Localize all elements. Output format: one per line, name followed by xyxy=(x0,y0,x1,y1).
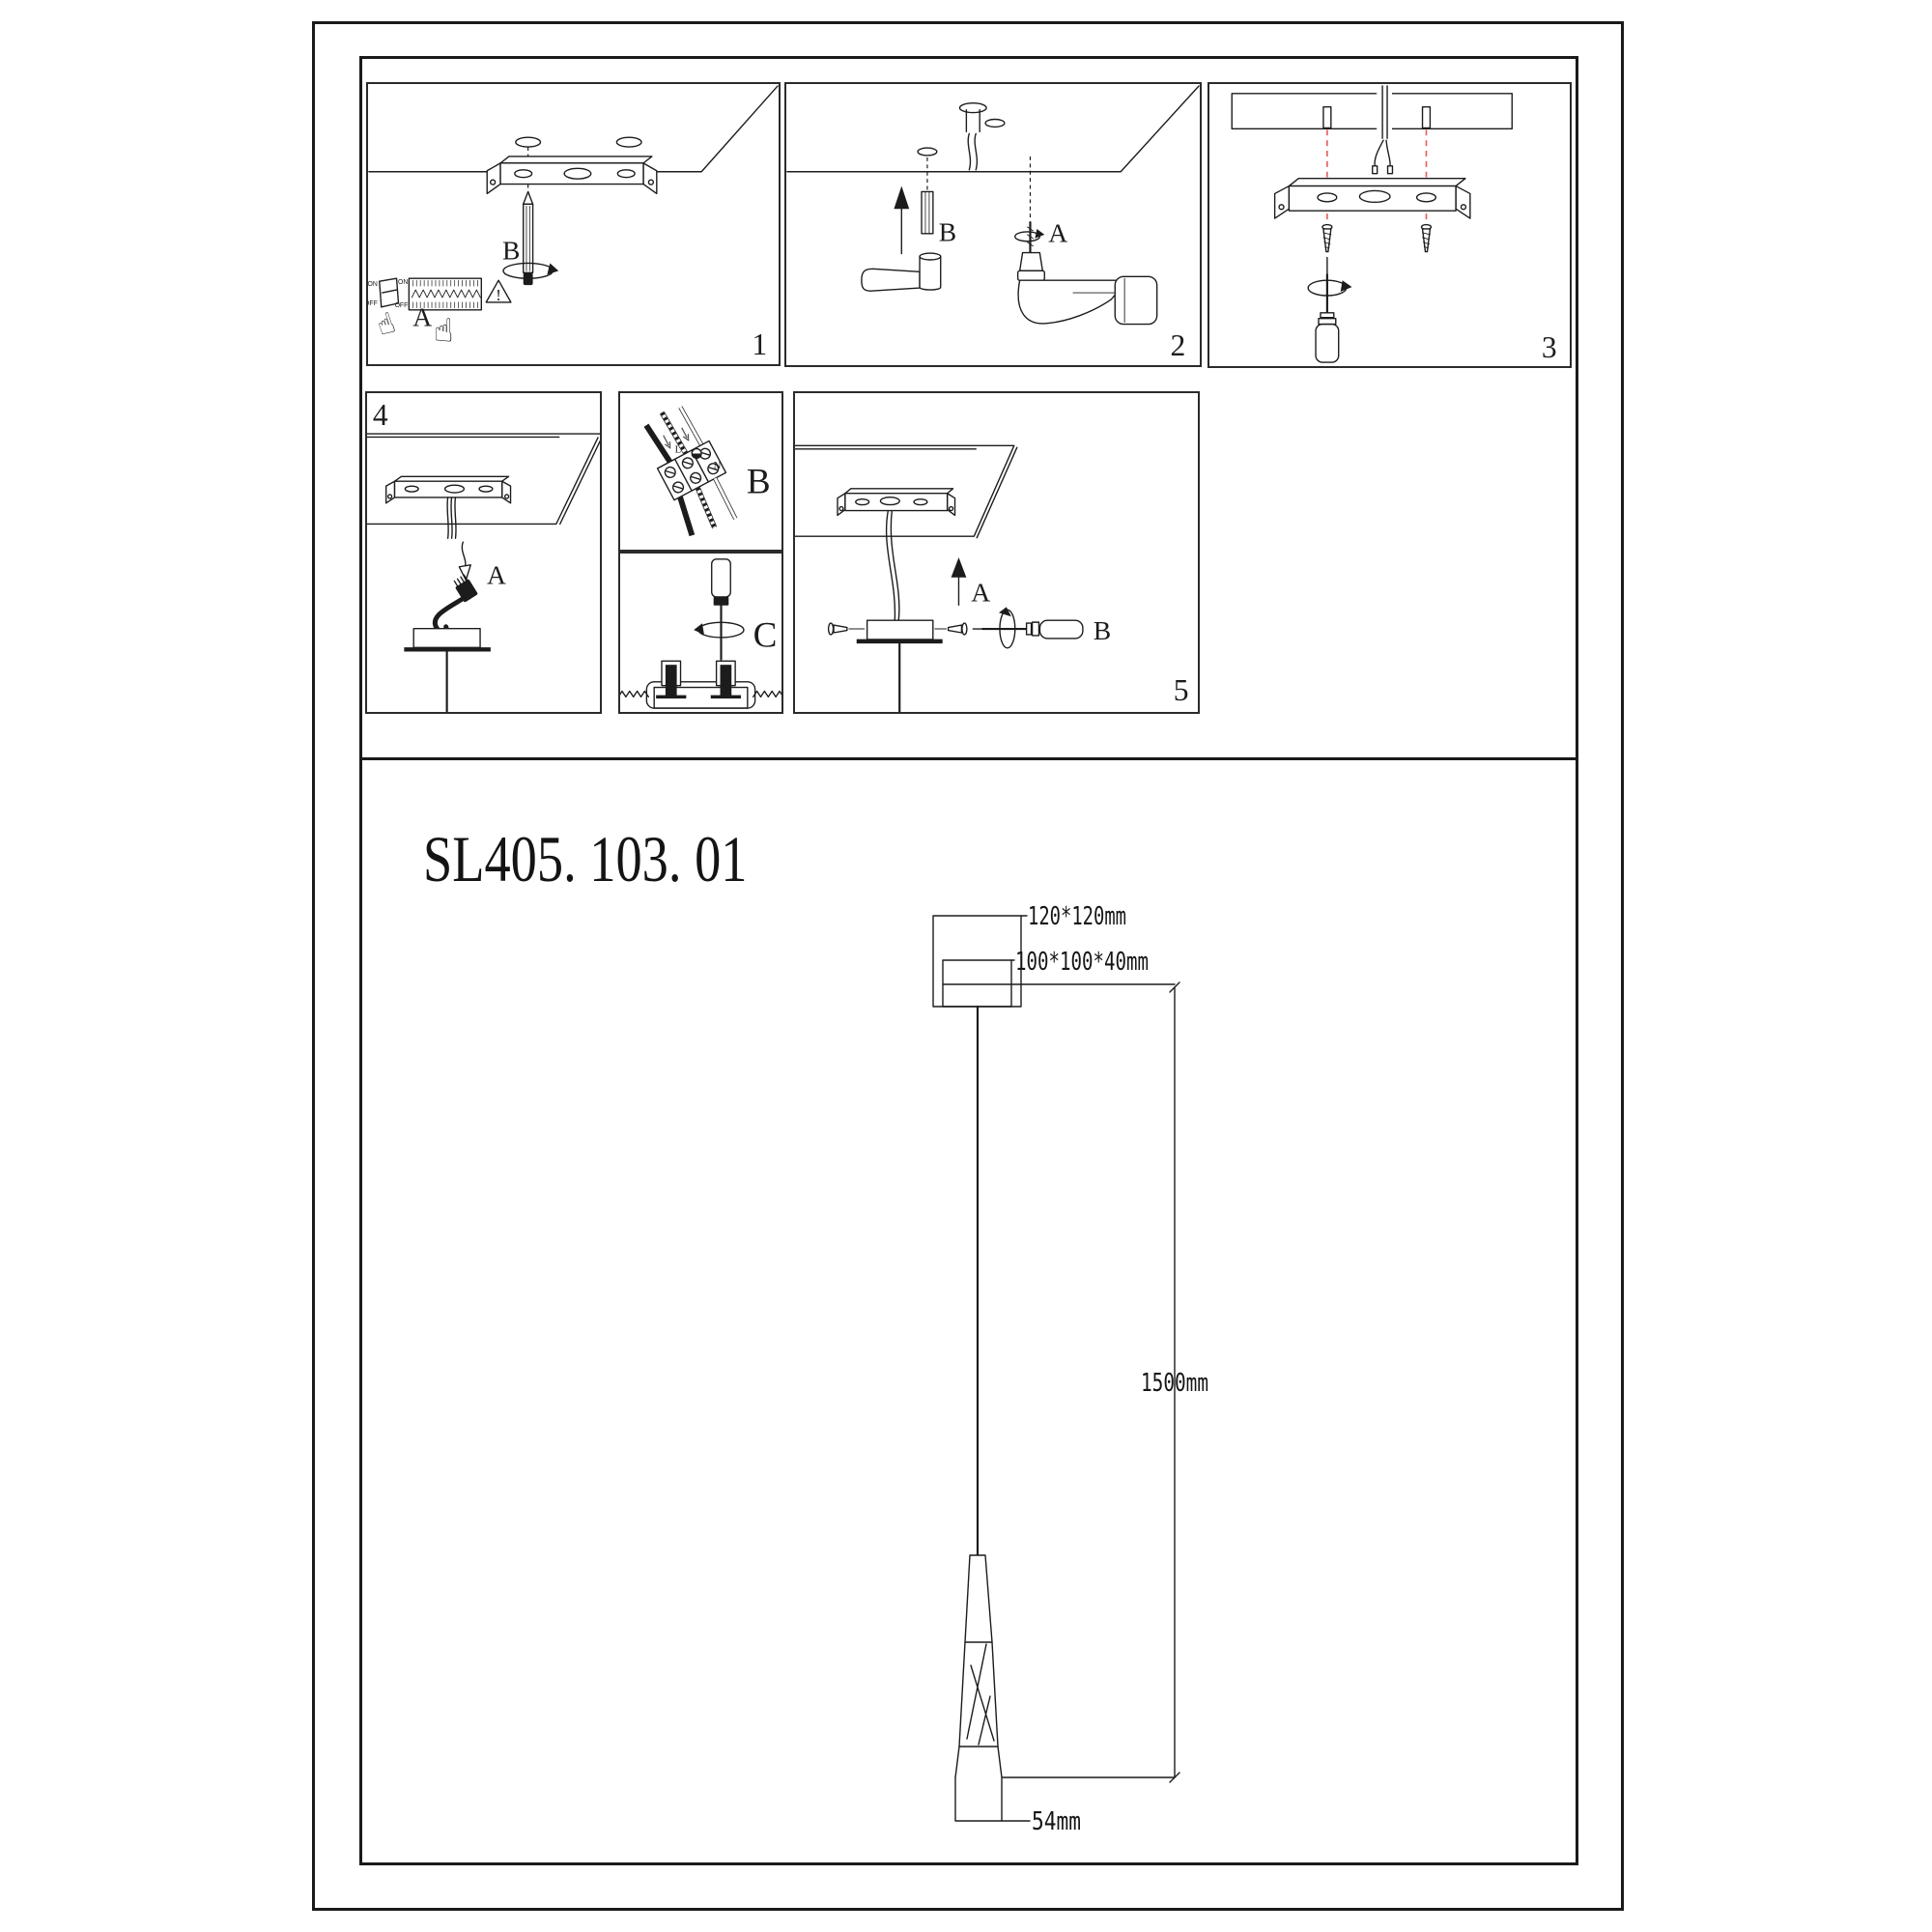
switch-off-label: OFF xyxy=(368,300,378,307)
hammer-icon xyxy=(862,253,941,291)
wiring-detail-illustration: L N B xyxy=(620,393,781,550)
step-5-panel: A xyxy=(793,391,1200,714)
neutral-label: N xyxy=(714,460,722,471)
instruction-sheet: B ! ON OFF ☝ ON OFF ☝ A 1 xyxy=(0,0,1932,1932)
anchor-in-ceiling xyxy=(1423,107,1431,128)
screw-icon xyxy=(829,623,865,635)
ceiling-hole-mark xyxy=(516,137,541,147)
connector-cable xyxy=(435,599,462,633)
anchor-in-ceiling xyxy=(1323,107,1331,128)
canopy-cross-section xyxy=(620,661,781,708)
guide-arrow xyxy=(459,542,470,580)
live-wire xyxy=(646,423,670,463)
step-2-illustration: B A xyxy=(786,84,1200,365)
screwdriver-icon xyxy=(1308,258,1351,363)
step-4-panel: 4 A xyxy=(365,391,602,714)
part-label-a: A xyxy=(487,559,506,589)
power-switch-icon: ON OFF ☝ xyxy=(368,278,399,342)
switch-on-label: ON xyxy=(368,281,378,288)
wiring-detail-panel: L N B xyxy=(618,391,783,552)
ceiling-hole-mark xyxy=(616,137,641,147)
wall-anchor-icon xyxy=(922,191,933,233)
step-number: 5 xyxy=(1174,673,1189,707)
mounting-bracket xyxy=(1275,179,1470,218)
ceiling-outline xyxy=(787,86,1199,172)
pencil-icon xyxy=(524,191,533,285)
step-4-illustration: 4 A xyxy=(367,393,600,712)
canopy xyxy=(857,620,943,712)
mounting-bracket xyxy=(487,156,657,193)
step-number: 4 xyxy=(373,398,388,432)
part-label-a: A xyxy=(1048,218,1067,248)
part-label-b: B xyxy=(1094,615,1111,645)
terminal-strip-icon: ON OFF xyxy=(395,278,482,310)
canopy xyxy=(404,629,491,712)
ceiling-zigzag xyxy=(620,692,648,697)
pointing-hand-icon: ☝ xyxy=(373,306,400,343)
terminal-block xyxy=(635,399,748,540)
step-3-illustration: 3 xyxy=(1209,84,1570,366)
screw-icon xyxy=(1322,225,1332,252)
ceiling-hole-mark xyxy=(918,148,937,156)
screwdriver-icon xyxy=(712,559,731,666)
ceiling-cable-gland xyxy=(959,103,986,170)
cable-cutout xyxy=(1377,92,1392,130)
plate-dimension: 120*120mm xyxy=(1028,902,1126,931)
mounting-bracket xyxy=(386,476,511,503)
step-number: 1 xyxy=(752,327,767,361)
shade-dimension: 54mm xyxy=(1032,1807,1081,1836)
tighten-detail-panel: C xyxy=(618,552,783,714)
earth-symbol-icon xyxy=(692,449,701,459)
strip-off-label: OFF xyxy=(395,302,409,309)
pointing-hand-icon: ☝ xyxy=(434,311,453,349)
step-number: 3 xyxy=(1542,330,1557,364)
live-wire xyxy=(673,497,698,535)
pendant-shade xyxy=(955,1555,1002,1821)
part-label-a: A xyxy=(412,302,432,332)
up-arrow-icon xyxy=(894,186,909,254)
screw-icon xyxy=(935,623,967,635)
step-1-panel: B ! ON OFF ☝ ON OFF ☝ A 1 xyxy=(366,82,781,366)
live-label: L xyxy=(675,443,682,455)
warning-mark: ! xyxy=(496,286,501,304)
detail-letter: B xyxy=(747,462,771,501)
step-2-panel: B A xyxy=(784,82,1202,367)
up-arrow-icon xyxy=(952,557,967,605)
screwdriver-icon xyxy=(973,607,1083,647)
part-label-a: A xyxy=(971,577,990,607)
strip-on-label: ON xyxy=(398,279,408,286)
step-5-illustration: A xyxy=(795,393,1198,712)
detail-letter: C xyxy=(753,616,778,656)
ceiling-hole-mark xyxy=(985,119,1005,127)
part-label-b: B xyxy=(939,217,956,247)
warning-icon: ! xyxy=(486,280,511,304)
step-3-panel: 3 xyxy=(1207,82,1572,368)
ceiling-zigzag xyxy=(753,692,781,697)
power-wires xyxy=(887,511,899,621)
drill-icon xyxy=(1018,253,1157,325)
ceiling-hatched xyxy=(1232,94,1512,129)
mounting-bracket xyxy=(838,489,955,516)
power-wires xyxy=(447,497,456,538)
tighten-detail-illustration: C xyxy=(620,554,781,712)
canopy-dimension: 100*100*40mm xyxy=(1015,948,1149,977)
cable-length-dimension: 1500mm xyxy=(1141,1369,1208,1398)
screw-icon xyxy=(1422,225,1432,252)
dimension-drawing: 120*120mm 100*100*40mm 1500mm 54mm xyxy=(359,759,1578,1865)
step-1-illustration: B ! ON OFF ☝ ON OFF ☝ A 1 xyxy=(368,84,779,364)
part-label-b: B xyxy=(502,235,520,265)
step-number: 2 xyxy=(1170,328,1185,362)
rotate-arrowhead xyxy=(547,263,558,274)
